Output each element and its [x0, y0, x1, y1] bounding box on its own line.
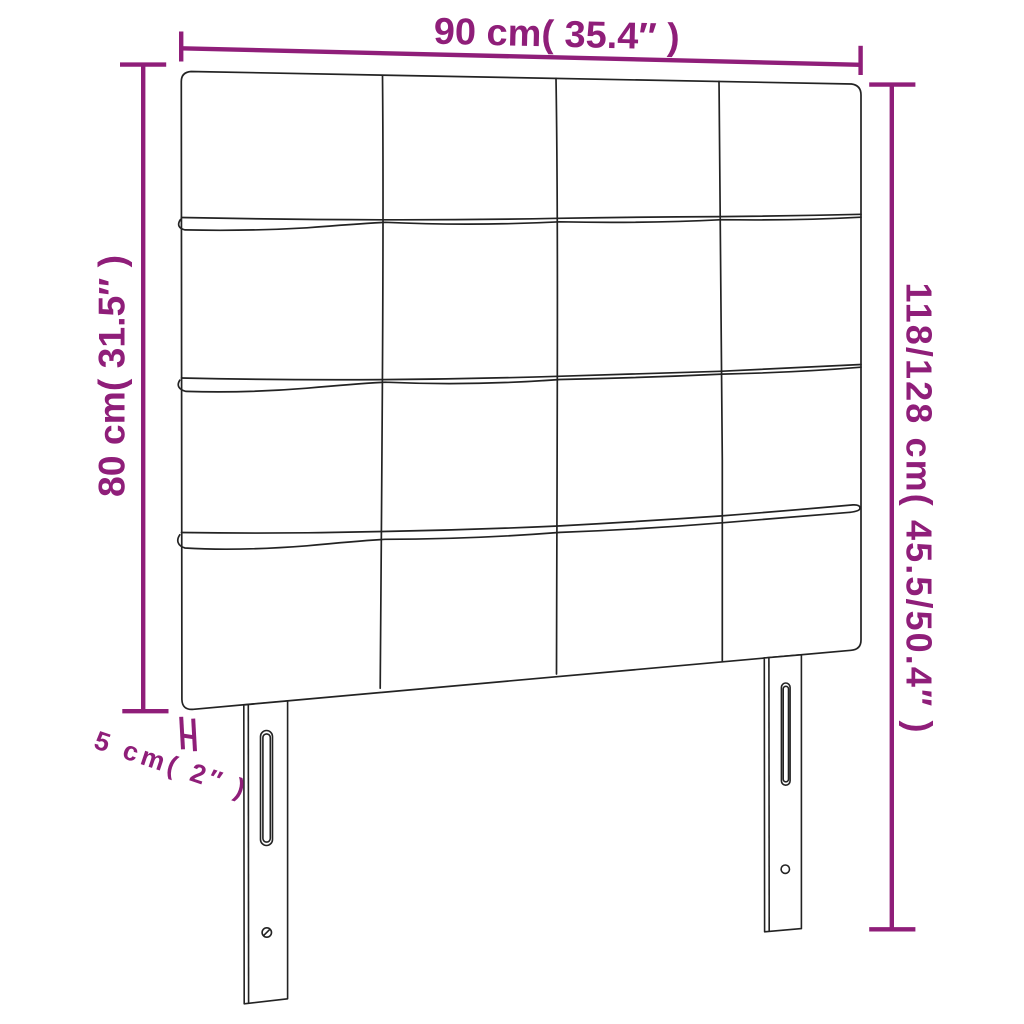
svg-text:80 cm( 31.5″ ): 80 cm( 31.5″ ) — [90, 255, 132, 497]
svg-text:90 cm( 35.4″ ): 90 cm( 35.4″ ) — [433, 10, 680, 58]
